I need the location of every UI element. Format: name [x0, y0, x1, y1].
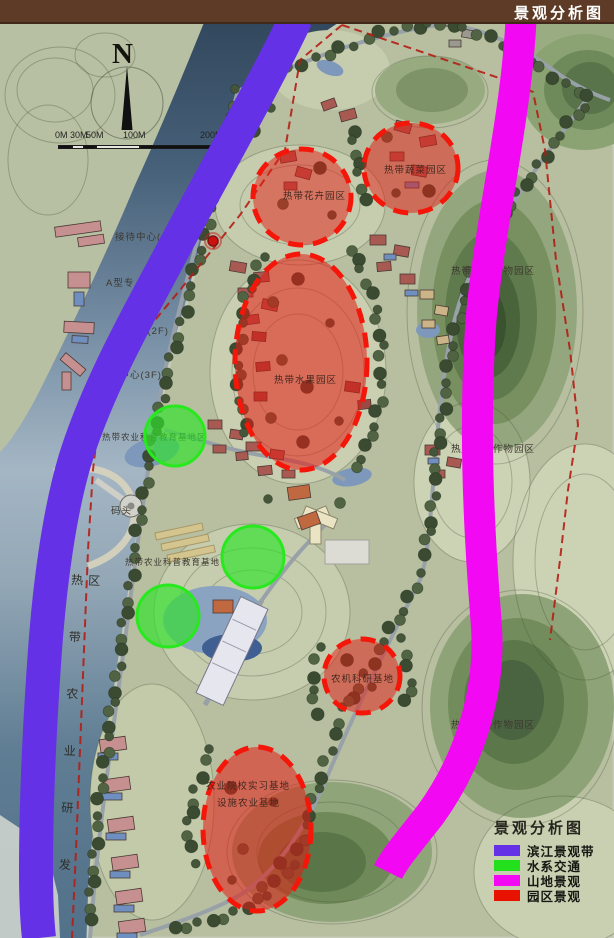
analysis-bands [0, 0, 614, 938]
water-traffic-swatch [494, 860, 520, 871]
riverside-swatch [494, 845, 520, 856]
legend-label: 园区景观 [527, 886, 581, 905]
riverside-landscape-band [36, 18, 296, 938]
mountain-landscape-band [388, 20, 521, 872]
legend: 景观分析图 滨江景观带 水系交通 山地景观 园区景观 [494, 817, 595, 903]
title-bar: 景观分析图 [0, 0, 614, 24]
legend-title: 景观分析图 [494, 817, 595, 838]
park-zone-swatch [494, 890, 520, 901]
page-title: 景观分析图 [514, 2, 604, 23]
landscape-analysis-map: N 0M 30M 50M 100M 200M 接待中心( A型专 楼(2F) 务… [0, 0, 614, 938]
legend-row-park: 园区景观 [494, 888, 595, 903]
mountain-swatch [494, 875, 520, 886]
